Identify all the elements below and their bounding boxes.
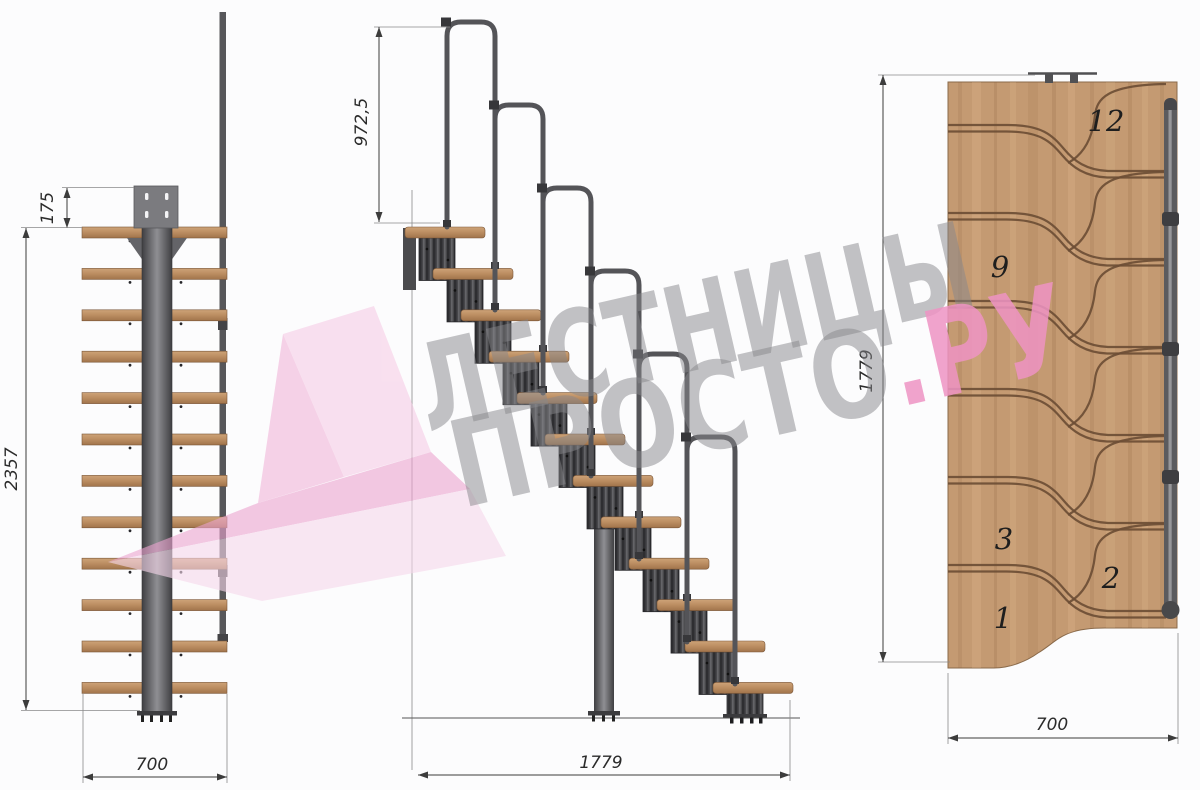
- step-label-1: 1: [994, 601, 1012, 635]
- step-label-12: 12: [1088, 104, 1125, 138]
- dim-value-1779-side: 1779: [579, 753, 622, 773]
- bottom-step-module: [713, 682, 793, 723]
- top-mounting-bracket: [134, 186, 178, 228]
- dim-value-2357: 2357: [2, 447, 22, 490]
- dimension-handrail-height: 972,5: [352, 27, 450, 223]
- step-label-3: 3: [995, 522, 1013, 556]
- staircase-drawing: 175 2357 700: [0, 0, 1200, 790]
- technical-drawing-page: 175 2357 700: [0, 0, 1200, 790]
- dimension-total-height: 2357: [2, 228, 140, 711]
- dim-value-700-plan: 700: [1036, 715, 1068, 735]
- dim-value-972-5: 972,5: [352, 98, 372, 147]
- dim-value-700-front: 700: [136, 755, 168, 775]
- dim-value-175: 175: [38, 192, 58, 224]
- step-label-2: 2: [1101, 561, 1120, 595]
- handrail-plan: [1162, 98, 1180, 619]
- dimension-bracket-offset: 175: [38, 188, 134, 229]
- front-view: 175 2357 700: [2, 12, 228, 783]
